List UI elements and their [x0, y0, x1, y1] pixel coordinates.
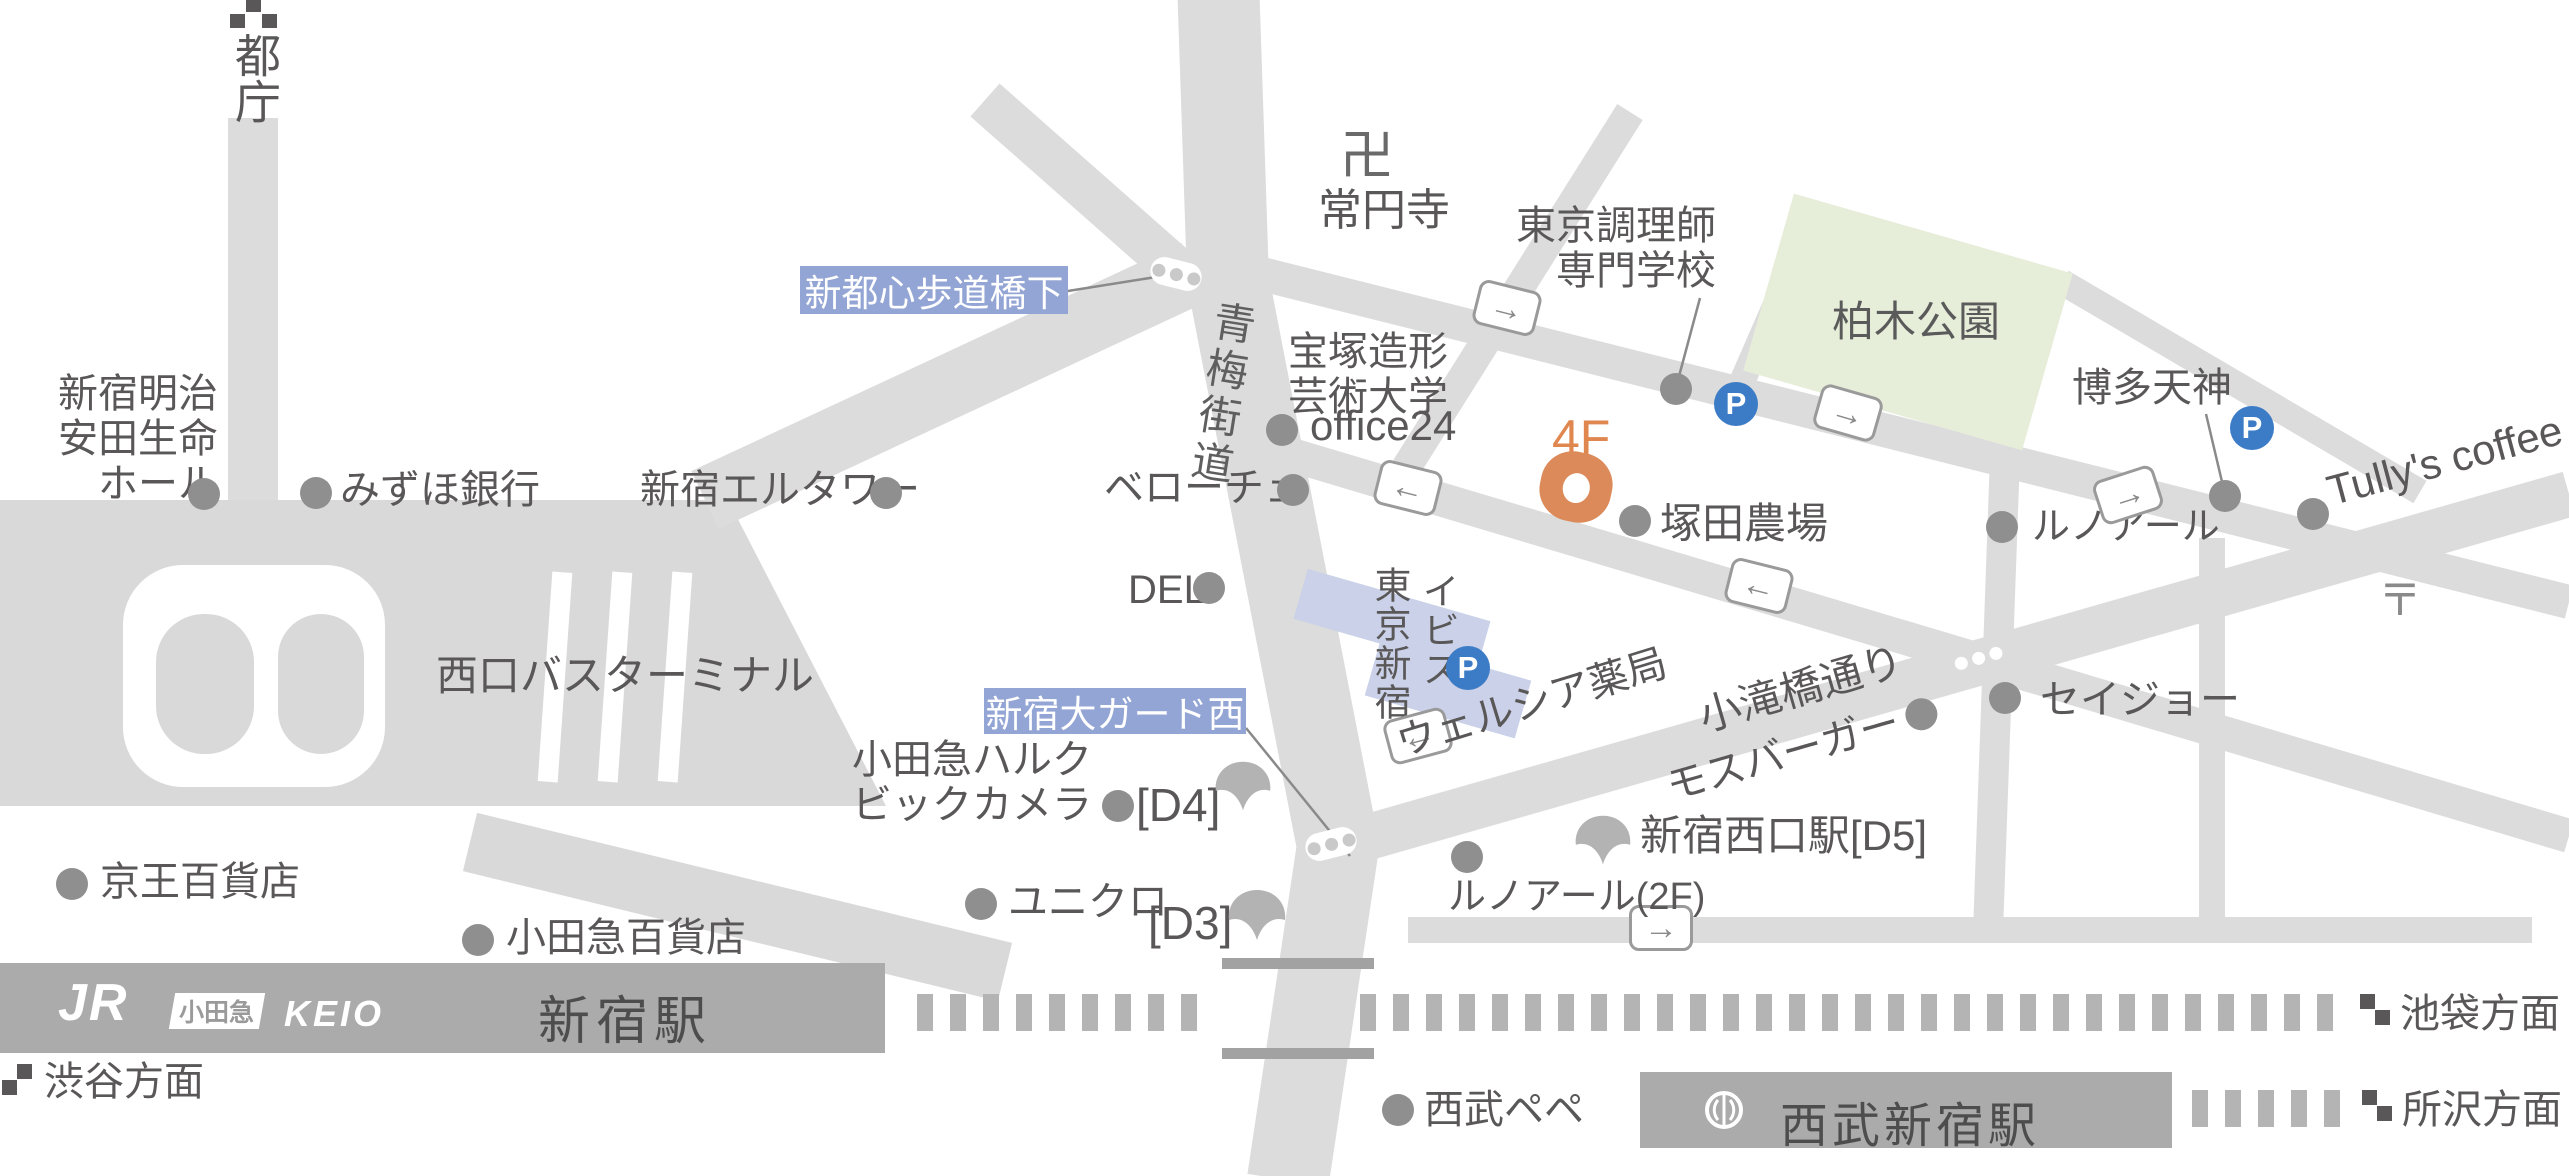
- seibu-pepe-label: 西武ペペ: [1424, 1088, 1584, 1133]
- office24-label: office24: [1310, 402, 1456, 449]
- meiji-line2: 安田生命: [28, 417, 218, 462]
- takarazuka-line1: 宝塚造形: [1288, 330, 1448, 375]
- odakyu-logo-text: 小田急: [179, 993, 254, 1029]
- seijo-label: セイジョー: [2040, 678, 2240, 723]
- exit-d4-label: [D4]: [1136, 780, 1220, 832]
- shinjuku-station-label: 新宿駅: [538, 979, 712, 1054]
- joenji-label: 常円寺: [1318, 186, 1450, 235]
- chorishi-line2: 専門学校: [1516, 249, 1716, 294]
- rotary-island: [156, 614, 254, 754]
- direction-checker-tokorozawa: [2362, 1090, 2396, 1124]
- seibu-logo: [1694, 1080, 1754, 1140]
- renoir-dot: [1986, 511, 2018, 543]
- tsukada-dot: [1619, 505, 1651, 537]
- mizuho-dot: [300, 477, 332, 509]
- direction-checker-ikebukuro: [2360, 994, 2394, 1028]
- oguard-west-sign: 新宿大ガード西: [984, 688, 1246, 734]
- chorishi-dot: [1660, 373, 1692, 405]
- keio-dept-label: 京王百貨店: [100, 860, 300, 905]
- bic-camera-line: ビックカメラ: [840, 783, 1092, 828]
- exit-d3-label: [D3]: [1148, 898, 1232, 950]
- nishiguchi-d5-label: 新宿西口駅[D5]: [1640, 812, 1927, 859]
- chorishi-school-label: 東京調理師 専門学校: [1516, 204, 1716, 294]
- parking-icon-building: P: [1446, 646, 1490, 690]
- uniqlo-label: ユニクロ: [1008, 880, 1168, 925]
- destination-marker-hole: [1560, 471, 1593, 506]
- veloce-label: ベローチェ: [1104, 466, 1304, 511]
- subway-exit-ginkgo-icon: [1222, 882, 1292, 946]
- parking-icon-school: P: [1714, 382, 1758, 426]
- subway-exit-ginkgo-icon: [1212, 752, 1274, 818]
- el-tower-dot: [870, 477, 902, 509]
- subway-exit-ginkgo-icon: [1572, 806, 1634, 872]
- odakyu-halc-line: 小田急ハルク: [840, 738, 1092, 783]
- railway-track-seibu: [2192, 1090, 2350, 1127]
- direction-checker-tocho: [230, 0, 280, 30]
- post-office-mark: 〒: [2378, 576, 2422, 625]
- deli-dot: [1193, 572, 1225, 604]
- bus-rotary: [123, 565, 385, 787]
- access-map: 西口バスターミナル 都庁 新都心歩道橋下 青梅街道 卍 常円寺 東京調理師 専門…: [0, 0, 2569, 1176]
- meiji-line1: 新宿明治: [28, 372, 218, 417]
- shibuya-direction-label: 渋谷方面: [44, 1060, 204, 1105]
- jr-logo: JR: [58, 973, 128, 1033]
- meiji-yasuda-dot: [188, 478, 220, 510]
- shinjuku-station-bar: JR 小田急 KEIO 新宿駅: [0, 963, 885, 1053]
- chorishi-line1: 東京調理師: [1516, 204, 1716, 249]
- uniqlo-dot: [965, 888, 997, 920]
- renoir-2f-dot: [1451, 841, 1483, 873]
- hakata-tenjin-label: 博多天神: [2072, 366, 2232, 411]
- odakyu-logo: 小田急: [169, 993, 265, 1029]
- rail-overpass-bar: [1222, 958, 1374, 969]
- renoir-2f-label: ルノアール(2F): [1448, 876, 1705, 919]
- keio-logo: KEIO: [284, 993, 384, 1035]
- odakyu-dept-label: 小田急百貨店: [506, 916, 746, 961]
- seibu-shinjuku-station-bar: 西武新宿駅: [1640, 1072, 2172, 1148]
- bic-camera-dot: [1102, 790, 1134, 822]
- bus-terminal-label: 西口バスターミナル: [436, 652, 814, 699]
- railway-track: [917, 994, 1207, 1031]
- tokorozawa-direction-label: 所沢方面: [2402, 1088, 2562, 1133]
- tsukada-label: 塚田農場: [1660, 500, 1828, 547]
- office24-dot: [1266, 414, 1298, 446]
- rotary-island: [278, 614, 364, 754]
- direction-checker-shibuya: [2, 1064, 36, 1098]
- kashiwagi-park-label: 柏木公園: [1832, 298, 2000, 345]
- seibu-pepe-dot: [1382, 1094, 1414, 1126]
- manji-icon: 卍: [1340, 126, 1394, 186]
- halc-bic-label: 小田急ハルク ビックカメラ: [840, 738, 1092, 828]
- building-name-left-column: 東京新宿: [1362, 566, 1416, 722]
- keio-dept-dot: [56, 868, 88, 900]
- veloce-dot: [1277, 474, 1309, 506]
- tocho-label: 都庁: [222, 32, 288, 124]
- mizuho-label: みずほ銀行: [340, 468, 540, 513]
- seijo-dot: [1989, 682, 2021, 714]
- ikebukuro-direction-label: 池袋方面: [2400, 992, 2560, 1037]
- odakyu-dept-dot: [462, 924, 494, 956]
- railway-track: [1360, 994, 2348, 1031]
- parking-icon-hakata: P: [2230, 406, 2274, 450]
- tullys-dot: [2297, 498, 2329, 530]
- seibu-shinjuku-label: 西武新宿駅: [1780, 1086, 2040, 1156]
- shintoshin-bridge-sign: 新都心歩道橋下: [800, 266, 1068, 314]
- rail-overpass-bar: [1222, 1048, 1374, 1059]
